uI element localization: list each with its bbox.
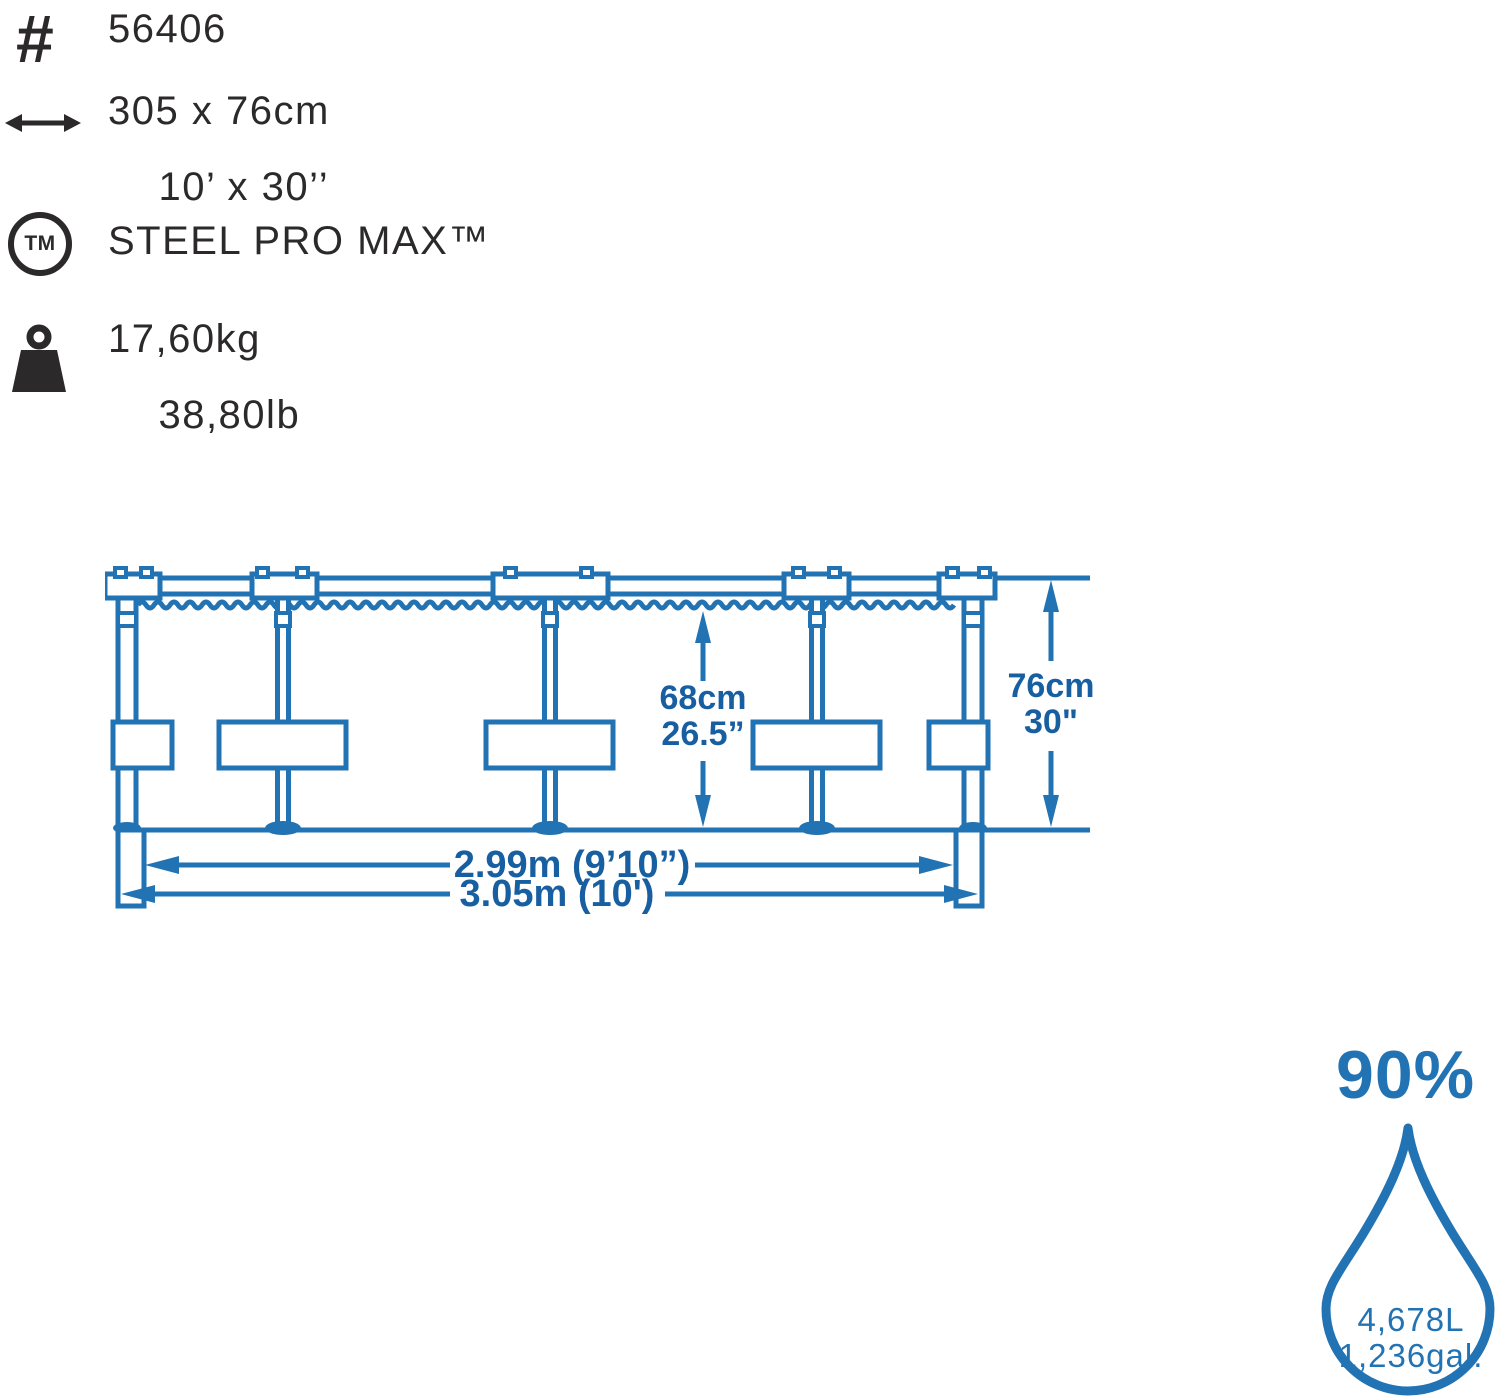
joint-tab [505,568,516,577]
product-weight: 17,60kg 38,80lb [108,320,300,434]
weight-icon [6,324,70,396]
band-clamp [929,722,988,768]
item-number: 56406 [108,10,227,48]
leg-foot [265,821,301,835]
pool-wall-left [118,594,136,830]
wall-height-metric: 76cm [1008,667,1095,705]
joint-tab [793,568,804,577]
pool-size: 305 x 76cm 10’ x 30’’ [108,92,330,206]
joint-tab [297,568,308,577]
volume-imperial: 1,236gal. [1339,1337,1484,1374]
joint-tab [581,568,592,577]
fill-level: 90% [1336,1036,1475,1114]
brand-name: STEEL PRO MAX™ [108,222,490,260]
water-depth-imperial: 26.5” [661,715,744,753]
leg-collar [118,613,136,626]
band-clamp [219,722,346,768]
leg-collar [543,613,557,626]
joint-tab [257,568,268,577]
width-arrow-icon [4,104,82,142]
dimension-water-depth: 68cm 26.5” [660,611,747,827]
leg-collar [964,613,982,626]
outer-diameter-label: 3.05m (10') [460,873,655,915]
pool-leg [545,594,556,830]
water-drop-icon: 4,678L 1,236gal. [1308,1122,1500,1399]
joint-tab [115,568,126,577]
joint-tab [829,568,840,577]
leg-collar [276,613,290,626]
wall-height-imperial: 30" [1024,703,1078,741]
dimension-outer-diameter: 3.05m (10') [121,873,978,915]
dimension-wall-height: 76cm 30" [1008,580,1095,827]
leg-foot [532,821,568,835]
pool-leg [812,594,823,830]
joint-tab [979,568,990,577]
trademark-icon: TM [8,212,72,276]
pool-size-metric: 305 x 76cm [108,89,330,133]
weight-metric: 17,60kg [108,317,261,361]
joint-tab [947,568,958,577]
band-clamp [113,722,172,768]
pool-wall-right [964,594,982,830]
pool-size-imperial: 10’ x 30’’ [158,165,329,209]
band-clamp [486,722,613,768]
pool-diagram: 68cm 26.5” 76cm 30" 2.99m (9’10”) 3.05 [105,563,1100,918]
volume-metric: 4,678L [1358,1301,1465,1338]
band-clamp [753,722,880,768]
weight-imperial: 38,80lb [158,393,300,437]
leg-foot [799,821,835,835]
joint-tab [141,568,152,577]
leg-collar [810,613,824,626]
item-number-icon: # [16,0,54,78]
water-depth-metric: 68cm [660,679,747,717]
pool-leg [278,594,289,830]
